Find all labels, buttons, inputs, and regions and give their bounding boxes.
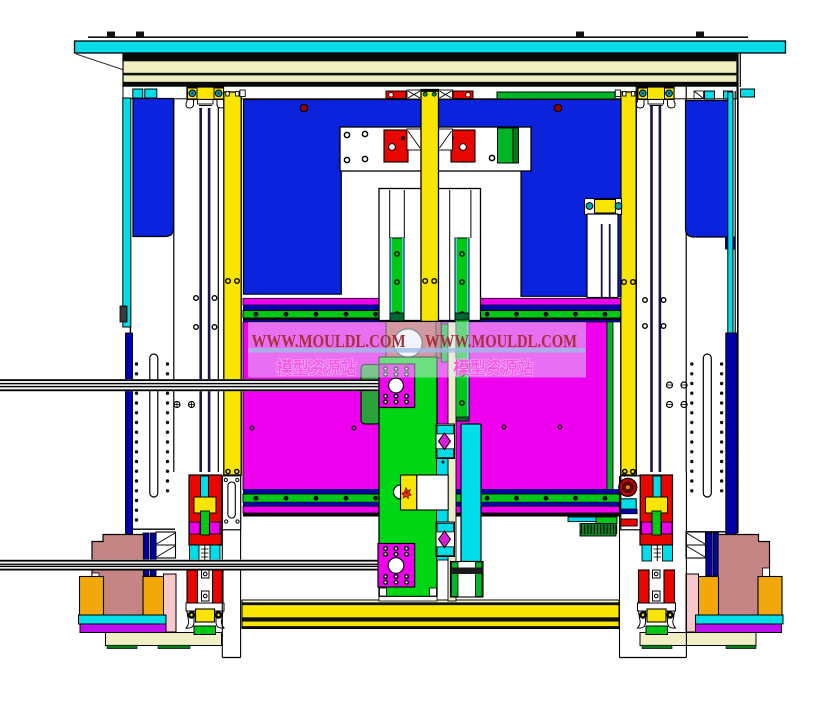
svg-text:模型资源站: 模型资源站	[277, 358, 357, 378]
svg-text:WWW.MOULDL.COM: WWW.MOULDL.COM	[425, 331, 577, 351]
svg-text:WWW.MOULDL.COM: WWW.MOULDL.COM	[252, 331, 406, 351]
svg-text:模型资源站: 模型资源站	[454, 358, 534, 378]
